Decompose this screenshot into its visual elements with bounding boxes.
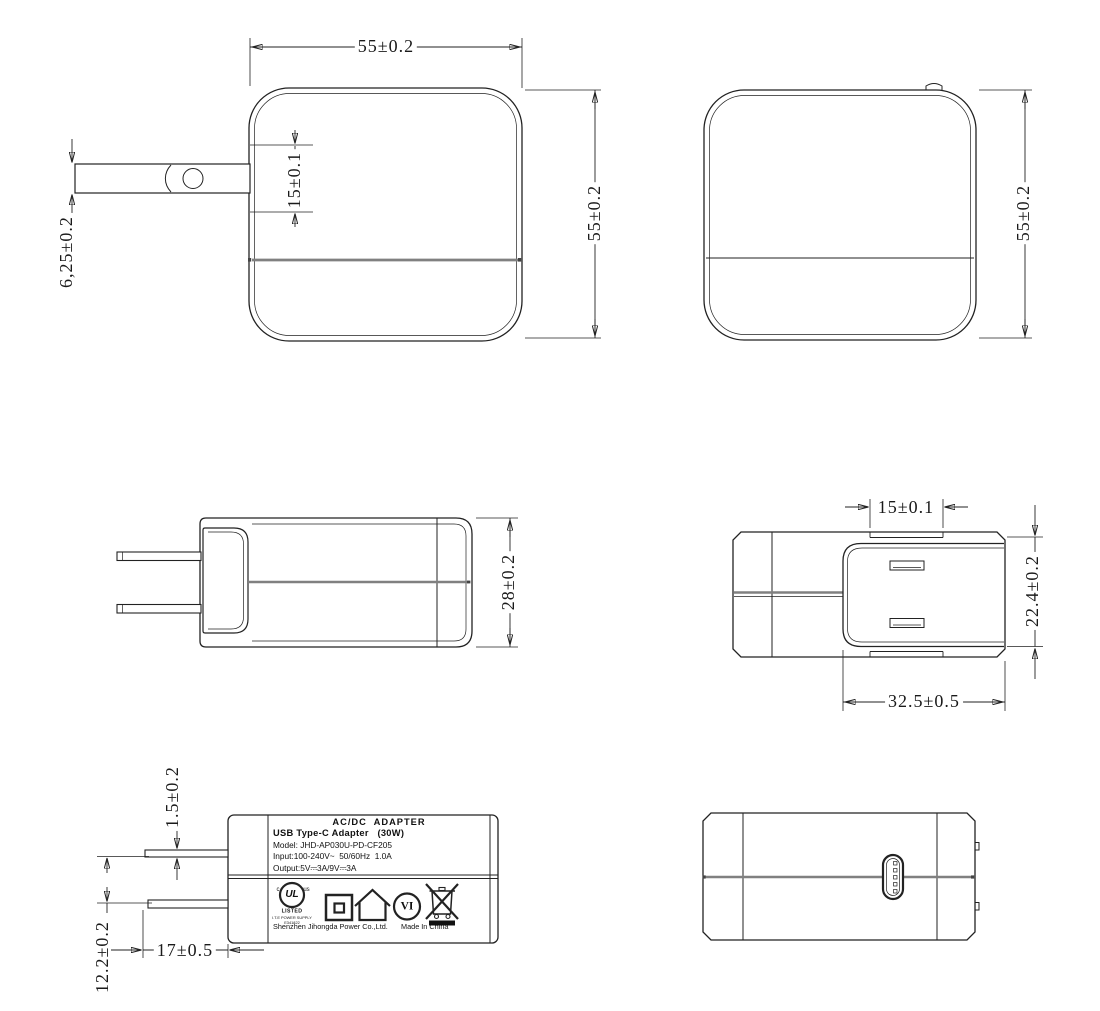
side-prongs <box>117 552 201 613</box>
prong-length-dim-label: 17±0.5 <box>154 941 216 959</box>
bottom-view <box>703 813 980 940</box>
prong-spacing-dim-label: 12.2±0.2 <box>93 918 111 996</box>
top-plug-recess <box>843 544 1004 647</box>
top-prong-slots <box>890 561 924 628</box>
front-height-dim-label: 55±0.2 <box>585 182 603 244</box>
technical-drawing-canvas: 55±0.2 55±0.2 15±0.1 6,25±0.2 55±0.2 28±… <box>0 0 1100 1011</box>
double-insulation-icon <box>326 895 352 920</box>
label-output-rating: Output:5V⎓3A/9V⎓3A <box>273 864 356 872</box>
rear-body-outline <box>704 90 976 340</box>
rear-body-inner-line <box>710 96 971 335</box>
ul-mark-text: UL <box>285 890 298 900</box>
label-model: Model: JHD-AP030U-PD-CF205 <box>273 841 392 849</box>
weee-crossed-bin-icon <box>426 884 458 926</box>
front-width-dim-label: 55±0.2 <box>355 37 417 55</box>
top-module-height-dim-label: 22.4±0.2 <box>1023 552 1041 630</box>
top-module-width-dim-label: 32.5±0.5 <box>885 692 963 710</box>
rear-height-dim-label: 55±0.2 <box>1014 182 1032 244</box>
label-origin: Made In China <box>401 923 448 930</box>
front-prong-offset-dim-label: 15±0.1 <box>285 149 303 211</box>
top-edge-notches <box>870 532 943 657</box>
top-body-outline <box>733 532 1005 657</box>
ul-listed-text: LISTED <box>282 909 303 914</box>
side-plug-base <box>203 528 248 633</box>
front-prong-blade <box>75 164 250 193</box>
usb-c-port-icon <box>883 855 903 899</box>
ul-us-text: us <box>303 887 309 893</box>
front-view <box>72 38 601 341</box>
label-title: AC/DC ADAPTER <box>268 818 490 827</box>
rear-view <box>704 84 1032 341</box>
top-prong-gap-dim-label: 15±0.1 <box>875 498 937 516</box>
label-prongs <box>145 850 228 908</box>
label-subtitle: USB Type-C Adapter (30W) <box>273 829 404 838</box>
prong-thickness-dim-label: 1.5±0.2 <box>163 763 181 831</box>
prong-spacing-dimension <box>97 857 152 914</box>
top-view <box>733 499 1043 711</box>
label-manufacturer: Shenzhen Jihongda Power Co.,Ltd. <box>273 923 388 930</box>
rear-latch-tab <box>926 84 942 91</box>
side-depth-dim-label: 28±0.2 <box>499 551 517 613</box>
label-input-rating: Input:100-240V~ 50/60Hz 1.0A <box>273 852 392 860</box>
front-prong-width-dim-label: 6,25±0.2 <box>57 213 75 291</box>
indoor-use-icon <box>355 890 390 920</box>
ul-c-text: c <box>277 887 280 893</box>
front-body-inner-line <box>255 94 517 336</box>
front-body-outline <box>249 88 522 341</box>
side-view <box>117 518 518 647</box>
efficiency-vi-text: VI <box>401 901 414 913</box>
